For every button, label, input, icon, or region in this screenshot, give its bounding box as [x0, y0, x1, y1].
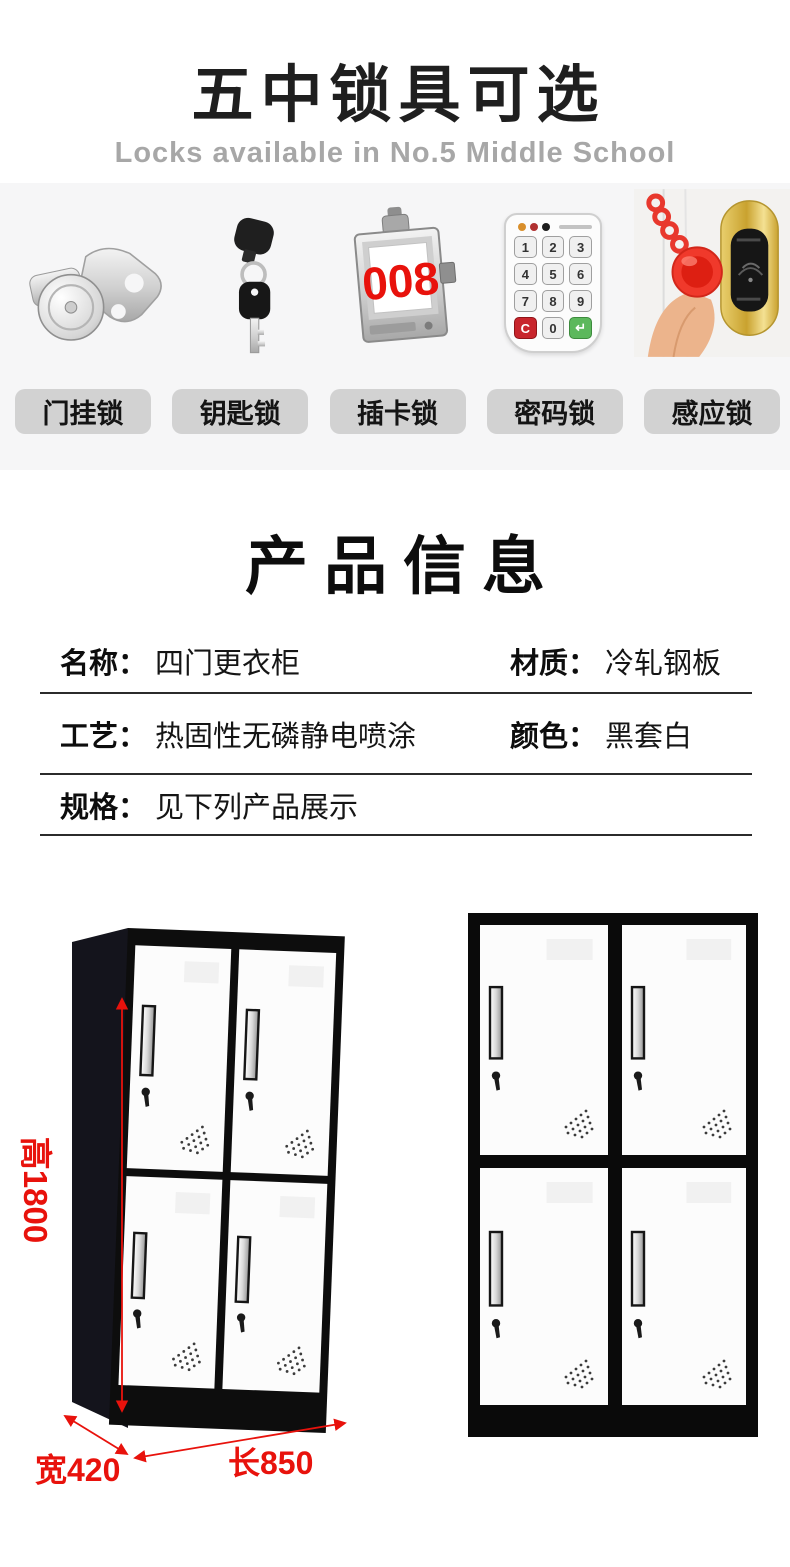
door-card-slot — [175, 1192, 210, 1214]
door-handle — [490, 987, 502, 1058]
field-label: 工艺： — [60, 713, 147, 755]
door-card-slot — [288, 965, 324, 987]
card-lock-icon: 008 — [336, 205, 464, 353]
field-value: 黑套白 — [605, 713, 692, 755]
field-value: 冷轧钢板 — [605, 640, 721, 682]
product-showcase: 高1800 宽420 长850 — [0, 900, 790, 1540]
page-subtitle: Locks available in No.5 Middle School — [0, 137, 790, 170]
field-value: 四门更衣柜 — [155, 640, 300, 682]
led-icon — [542, 223, 550, 231]
keypad-key: 9 — [569, 290, 592, 312]
locker-door — [480, 925, 608, 1155]
chip-card-lock: 插卡锁 — [330, 389, 466, 434]
led-icon — [530, 223, 538, 231]
keypad-key: 4 — [514, 263, 537, 285]
door-handle — [632, 987, 644, 1058]
keypad-clear-key: C — [514, 317, 537, 339]
info-field-spec: 规格： 见下列产品展示 — [40, 784, 510, 826]
info-field-material: 材质： 冷轧钢板 — [510, 640, 752, 682]
keypad-key: 8 — [542, 290, 565, 312]
field-label: 规格： — [60, 784, 147, 826]
chip-password-lock: 密码锁 — [487, 389, 623, 434]
field-value: 见下列产品展示 — [155, 784, 358, 826]
locker-door — [231, 949, 336, 1176]
locker-door — [480, 1168, 608, 1405]
info-row: 名称： 四门更衣柜 材质： 冷轧钢板 — [40, 630, 752, 694]
induction-lock-icon — [634, 189, 790, 357]
locker-door — [622, 925, 746, 1155]
height-dimension-label: 高1800 — [14, 1137, 62, 1243]
keypad-enter-key: ↵ — [569, 317, 592, 339]
door-handle — [244, 1010, 259, 1080]
info-row: 工艺： 热固性无磷静电喷涂 颜色： 黑套白 — [40, 694, 752, 775]
door-card-slot — [184, 961, 219, 983]
locker-door — [118, 1176, 222, 1389]
cam-lock-image — [12, 225, 170, 357]
keypad-key: 6 — [569, 263, 592, 285]
door-handle — [132, 1233, 146, 1298]
door-card-slot — [547, 939, 593, 960]
door-handle — [632, 1232, 644, 1305]
keypad-key: 0 — [542, 317, 565, 339]
locker-door — [127, 945, 231, 1172]
door-card-slot — [547, 1182, 593, 1203]
lock-type-chips: 门挂锁 钥匙锁 插卡锁 密码锁 感应锁 — [15, 389, 780, 434]
locker-door — [622, 1168, 746, 1405]
keys-icon — [196, 215, 308, 361]
keypad-key: 7 — [514, 290, 537, 312]
locks-section: 008 1 2 3 4 5 6 7 — [0, 183, 790, 470]
door-card-slot — [686, 939, 731, 960]
locker-door — [222, 1180, 327, 1393]
door-handle — [236, 1237, 250, 1302]
door-card-slot — [279, 1196, 315, 1218]
keypad-lock-image: 1 2 3 4 5 6 7 8 9 C 0 ↵ — [504, 213, 602, 353]
chip-key-lock: 钥匙锁 — [172, 389, 308, 434]
product-info-table: 名称： 四门更衣柜 材质： 冷轧钢板 工艺： 热固性无磷静电喷涂 颜色： 黑套白… — [40, 630, 752, 836]
field-label: 名称： — [60, 640, 147, 682]
door-handle — [490, 1232, 502, 1305]
info-row: 规格： 见下列产品展示 — [40, 775, 752, 836]
induction-lock-image — [634, 189, 790, 357]
length-dimension-label: 长850 — [228, 1438, 313, 1484]
page-title: 五中锁具可选 — [0, 44, 790, 134]
led-icon — [518, 223, 526, 231]
product-info-title: 产品信息 — [0, 516, 790, 607]
door-handle — [140, 1006, 155, 1076]
keypad-key: 3 — [569, 236, 592, 258]
locker-front-view — [455, 905, 765, 1450]
info-field-process: 工艺： 热固性无磷静电喷涂 — [40, 713, 510, 755]
locker-number-label: 008 — [360, 252, 441, 310]
chip-induction-lock: 感应锁 — [644, 389, 780, 434]
product-page: 五中锁具可选 Locks available in No.5 Middle Sc… — [0, 0, 790, 1567]
door-card-slot — [686, 1182, 731, 1203]
keys-image — [196, 215, 308, 361]
card-lock-image: 008 — [336, 205, 464, 353]
keypad-key: 1 — [514, 236, 537, 258]
field-value: 热固性无磷静电喷涂 — [155, 713, 416, 755]
width-dimension-label: 宽420 — [35, 1445, 120, 1491]
field-label: 材质： — [510, 640, 597, 682]
keypad-brand-text — [559, 225, 592, 229]
info-field-color: 颜色： 黑套白 — [510, 713, 752, 755]
keypad-key: 5 — [542, 263, 565, 285]
keypad-grid: 1 2 3 4 5 6 7 8 9 C 0 ↵ — [514, 236, 592, 339]
locker-3d-view — [55, 915, 365, 1475]
cam-lock-icon — [12, 225, 170, 357]
info-field-name: 名称： 四门更衣柜 — [40, 640, 510, 682]
chip-door-hanging-lock: 门挂锁 — [15, 389, 151, 434]
keypad-leds — [518, 223, 592, 231]
field-label: 颜色： — [510, 713, 597, 755]
keypad-key: 2 — [542, 236, 565, 258]
